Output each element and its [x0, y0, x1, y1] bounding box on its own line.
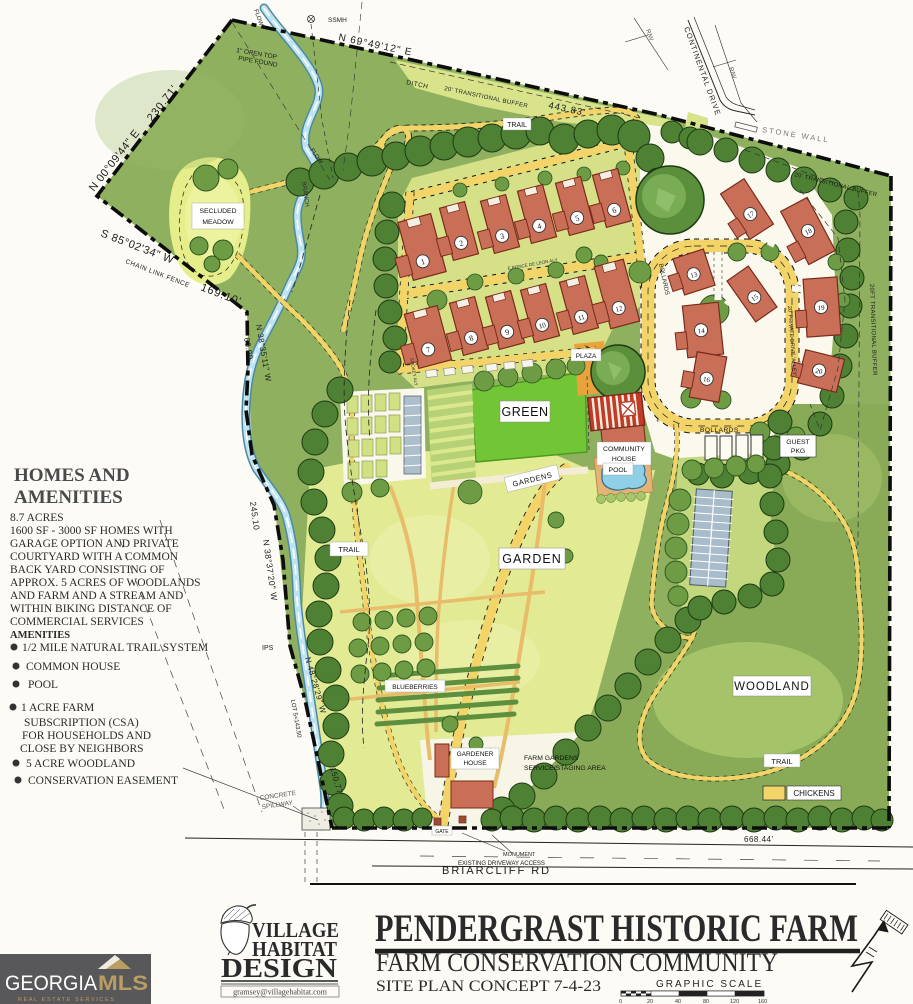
svg-text:160: 160: [758, 999, 767, 1004]
svg-text:MONUMENT: MONUMENT: [503, 852, 536, 858]
svg-text:SUBSCRIPTION (CSA): SUBSCRIPTION (CSA): [24, 717, 139, 729]
svg-text:BOLLARDS: BOLLARDS: [700, 427, 739, 434]
svg-text:IPS: IPS: [262, 645, 274, 652]
svg-text:COURTYARD WITH A COMMON: COURTYARD WITH A COMMON: [10, 551, 179, 563]
svg-text:PENDERGRAST HISTORIC FARM: PENDERGRAST HISTORIC FARM: [375, 907, 858, 950]
svg-text:1 ACRE FARM: 1 ACRE FARM: [21, 702, 94, 714]
svg-text:GARDENER: GARDENER: [457, 751, 494, 758]
svg-text:PKG: PKG: [791, 448, 805, 455]
svg-text:SITE PLAN CONCEPT 7-4-23: SITE PLAN CONCEPT 7-4-23: [376, 978, 601, 995]
svg-text:COMMUNITY: COMMUNITY: [603, 446, 645, 453]
svg-text:TRAIL: TRAIL: [338, 545, 359, 554]
svg-text:WITHIN BIKING DISTANCE OF: WITHIN BIKING DISTANCE OF: [10, 603, 172, 615]
svg-text:REAL ESTATE SERVICES: REAL ESTATE SERVICES: [18, 997, 116, 1003]
svg-text:GUEST: GUEST: [786, 439, 809, 446]
svg-text:FARM CONSERVATION COMMUNITY: FARM CONSERVATION COMMUNITY: [376, 948, 778, 977]
svg-text:CLOSE BY NEIGHBORS: CLOSE BY NEIGHBORS: [20, 743, 144, 755]
svg-text:PLAZA: PLAZA: [576, 353, 597, 360]
svg-text:SECLUDED: SECLUDED: [199, 208, 236, 215]
svg-text:HOUSE: HOUSE: [612, 456, 637, 463]
svg-text:HOUSE: HOUSE: [463, 760, 487, 767]
svg-text:AMENITIES: AMENITIES: [10, 630, 70, 641]
svg-text:GARAGE OPTION AND PRIVATE: GARAGE OPTION AND PRIVATE: [10, 538, 179, 550]
svg-text:FOR HOUSEHOLDS AND: FOR HOUSEHOLDS AND: [22, 730, 151, 742]
svg-text:BACK YARD CONSISTING OF: BACK YARD CONSISTING OF: [10, 564, 165, 576]
svg-text:SSMH: SSMH: [328, 17, 347, 24]
svg-text:1600 SF - 3000 SF HOMES WITH: 1600 SF - 3000 SF HOMES WITH: [10, 525, 173, 537]
svg-text:FARM GARDENS: FARM GARDENS: [524, 755, 579, 762]
svg-text:POOL: POOL: [28, 679, 58, 691]
svg-text:COMMERCIAL SERVICES: COMMERCIAL SERVICES: [10, 616, 144, 628]
svg-text:19: 19: [817, 304, 825, 313]
svg-text:120: 120: [730, 999, 739, 1004]
svg-text:AND FARM AND A STREAM AND: AND FARM AND A STREAM AND: [10, 590, 183, 602]
svg-text:MEADOW: MEADOW: [202, 219, 234, 226]
svg-text:0: 0: [619, 999, 622, 1004]
svg-text:BLUEBERRIES: BLUEBERRIES: [392, 684, 438, 691]
svg-text:HOMES AND: HOMES AND: [14, 465, 130, 486]
svg-text:20: 20: [647, 999, 653, 1004]
svg-text:WOODLAND: WOODLAND: [734, 681, 810, 693]
svg-text:GREEN: GREEN: [502, 405, 549, 419]
svg-text:TRAIL: TRAIL: [771, 757, 792, 766]
svg-text:8.7 ACRES: 8.7 ACRES: [10, 512, 64, 524]
svg-text:COMMON HOUSE: COMMON HOUSE: [26, 661, 120, 673]
svg-text:CONSERVATION EASEMENT: CONSERVATION EASEMENT: [28, 775, 178, 787]
svg-text:BRIARCLIFF RD: BRIARCLIFF RD: [442, 865, 551, 877]
svg-text:668.44': 668.44': [744, 835, 774, 844]
svg-text:gramsey@villagehabitat.com: gramsey@villagehabitat.com: [233, 988, 328, 997]
svg-text:GRAPHIC SCALE: GRAPHIC SCALE: [656, 979, 763, 990]
svg-text:40: 40: [675, 999, 681, 1004]
svg-text:SERVICE/STAGING AREA: SERVICE/STAGING AREA: [524, 765, 606, 772]
svg-text:POOL: POOL: [609, 467, 628, 474]
svg-text:DESIGN: DESIGN: [221, 953, 338, 983]
svg-text:APPROX. 5 ACRES OF WOODLANDS: APPROX. 5 ACRES OF WOODLANDS: [10, 577, 201, 589]
svg-text:1/2 MILE NATURAL TRAIL SYSTEM: 1/2 MILE NATURAL TRAIL SYSTEM: [22, 642, 208, 654]
svg-text:GATE: GATE: [435, 829, 449, 835]
svg-text:14: 14: [697, 327, 705, 336]
svg-text:GEORGIA: GEORGIA: [5, 972, 97, 995]
svg-text:5 ACRE WOODLAND: 5 ACRE WOODLAND: [26, 758, 135, 770]
svg-text:80: 80: [703, 999, 709, 1004]
svg-text:GARDEN: GARDEN: [502, 552, 561, 566]
svg-text:TRAIL: TRAIL: [507, 122, 527, 129]
svg-text:CHICKENS: CHICKENS: [793, 789, 834, 798]
svg-text:MLS: MLS: [98, 972, 148, 995]
svg-text:AMENITIES: AMENITIES: [14, 487, 123, 508]
